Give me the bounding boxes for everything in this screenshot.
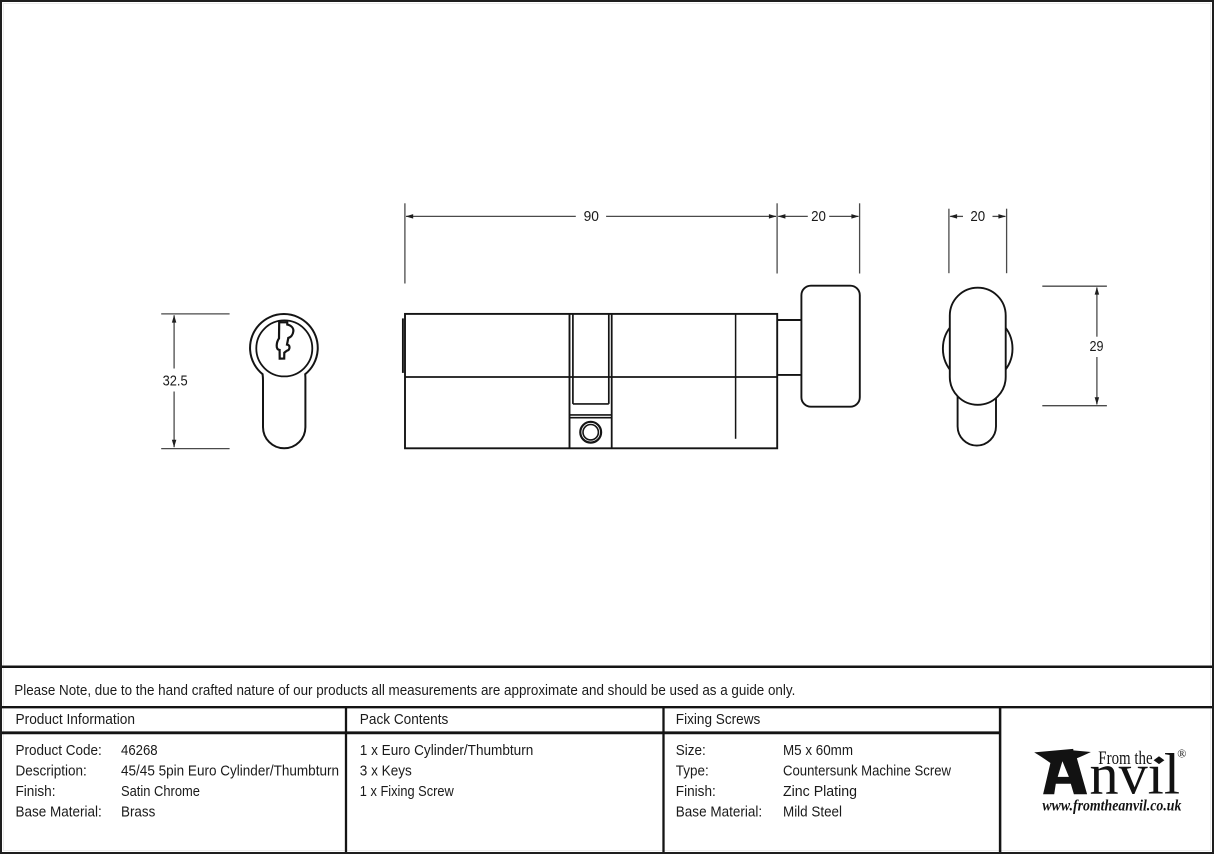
svg-text:Product Code:: Product Code:	[16, 742, 102, 759]
svg-text:www.fromtheanvil.co.uk: www.fromtheanvil.co.uk	[1042, 798, 1181, 815]
svg-text:Product Information: Product Information	[16, 711, 136, 728]
svg-text:Size:: Size:	[676, 742, 706, 759]
svg-text:1 x Fixing Screw: 1 x Fixing Screw	[360, 783, 454, 800]
svg-text:Base Material:: Base Material:	[16, 804, 102, 821]
svg-text:Finish:: Finish:	[16, 783, 56, 800]
svg-text:90: 90	[584, 208, 599, 225]
svg-text:Type:: Type:	[676, 763, 709, 780]
svg-text:3 x Keys: 3 x Keys	[360, 763, 412, 780]
svg-text:Base Material:: Base Material:	[676, 804, 762, 821]
svg-text:Pack Contents: Pack Contents	[360, 711, 449, 728]
svg-text:Satin Chrome: Satin Chrome	[121, 783, 200, 800]
svg-text:46268: 46268	[121, 742, 158, 759]
svg-text:Mild Steel: Mild Steel	[783, 804, 842, 821]
svg-text:20: 20	[970, 208, 985, 225]
svg-text:Zinc Plating: Zinc Plating	[783, 783, 857, 800]
svg-text:29: 29	[1090, 338, 1104, 355]
svg-text:Countersunk Machine Screw: Countersunk Machine Screw	[783, 763, 951, 780]
svg-text:Finish:: Finish:	[676, 783, 716, 800]
svg-text:Please Note, due to the hand c: Please Note, due to the hand crafted nat…	[14, 682, 795, 699]
svg-text:20: 20	[811, 208, 826, 225]
svg-text:1 x Euro Cylinder/Thumbturn: 1 x Euro Cylinder/Thumbturn	[360, 742, 534, 759]
svg-text:45/45 5pin Euro Cylinder/Thumb: 45/45 5pin Euro Cylinder/Thumbturn	[121, 763, 339, 780]
svg-text:Brass: Brass	[121, 804, 155, 821]
svg-text:M5 x 60mm: M5 x 60mm	[783, 742, 853, 759]
svg-text:Fixing Screws: Fixing Screws	[676, 711, 761, 728]
svg-text:From the: From the	[1098, 748, 1152, 769]
svg-text:Description:: Description:	[16, 763, 87, 780]
svg-text:®: ®	[1177, 747, 1186, 761]
svg-text:32.5: 32.5	[163, 372, 188, 389]
